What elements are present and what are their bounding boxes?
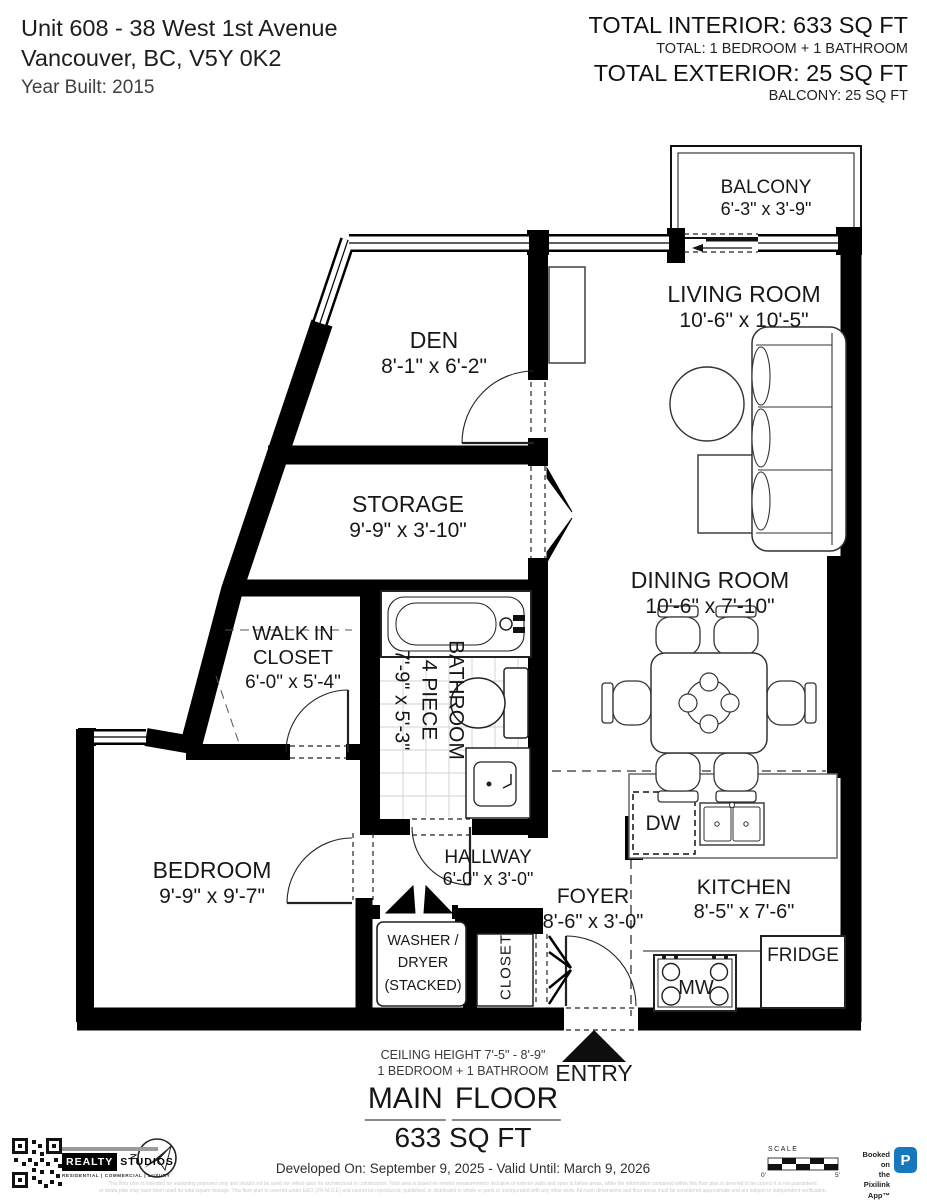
scale-end: 5' xyxy=(835,1172,840,1179)
floorplan-page: Unit 608 - 38 West 1st Avenue Vancouver,… xyxy=(0,0,927,1200)
pixilink-caption: Booked on the Pixilink App™ xyxy=(853,1150,890,1200)
label-kitchen: KITCHEN 8'-5" x 7'-6" xyxy=(694,874,795,925)
label-storage: STORAGE 9'-9" x 3'-10" xyxy=(349,490,466,544)
floor-area: 633 SQ FT xyxy=(395,1122,532,1154)
exterior-detail: BALCONY: 25 SQ FT xyxy=(589,88,909,104)
label-entry: ENTRY xyxy=(555,1060,633,1087)
scale-start: 0' xyxy=(761,1172,766,1179)
qr-code-icon xyxy=(12,1138,62,1188)
floor-title: MAINFLOOR xyxy=(362,1082,564,1121)
label-microwave: MW xyxy=(678,977,714,1000)
label-bathroom: BATHROOM 4 PIECE 7'-9" x 5'-3" xyxy=(389,640,470,760)
realty-studios-logo: REALTY STUDIOS RESIDENTIAL | COMMERCIAL … xyxy=(62,1147,172,1178)
label-fridge: FRIDGE xyxy=(767,945,839,967)
label-walk-in-closet: WALK IN CLOSET 6'-0" x 5'-4" xyxy=(245,622,341,694)
total-rooms: TOTAL: 1 BEDROOM + 1 BATHROOM xyxy=(589,41,909,57)
scale-bar xyxy=(768,1158,838,1170)
floor-word-floor: FLOOR xyxy=(452,1082,561,1121)
label-bedroom: BEDROOM 9'-9" x 9'-7" xyxy=(153,856,272,910)
property-header: Unit 608 - 38 West 1st Avenue Vancouver,… xyxy=(21,14,338,100)
scale-label: SCALE xyxy=(768,1146,798,1153)
label-dining-room: DINING ROOM 10'-6" x 7'-10" xyxy=(631,566,789,620)
logo-studios: STUDIOS xyxy=(117,1156,174,1168)
label-living-room: LIVING ROOM 10'-6" x 10'-5" xyxy=(667,280,820,334)
label-den: DEN 8'-1" x 6'-2" xyxy=(381,326,487,380)
disclaimer-line2: or strata plan may have been used for to… xyxy=(99,1188,827,1194)
area-summary-header: TOTAL INTERIOR: 633 SQ FT TOTAL: 1 BEDRO… xyxy=(589,14,909,109)
kitchen-sink-icon xyxy=(700,803,764,846)
pixilink-app-letter: P xyxy=(900,1152,910,1169)
total-interior: TOTAL INTERIOR: 633 SQ FT xyxy=(589,14,909,38)
label-hallway: HALLWAY 6'-0" x 3'-0" xyxy=(443,846,534,891)
label-balcony: BALCONY 6'-3" x 3'-9" xyxy=(721,176,812,221)
address-line1: Unit 608 - 38 West 1st Avenue xyxy=(21,14,338,44)
floor-word-main: MAIN xyxy=(365,1082,446,1121)
developed-valid-dates: Developed On: September 9, 2025 - Valid … xyxy=(276,1161,650,1176)
label-washer-dryer: WASHER / DRYER (STACKED) xyxy=(384,930,461,997)
bed-bath-count: 1 BEDROOM + 1 BATHROOM xyxy=(378,1064,549,1078)
disclaimer-line1: This floor plan is intended for marketin… xyxy=(108,1181,818,1187)
logo-bar xyxy=(62,1147,158,1151)
label-foyer-closet: CLOSET xyxy=(498,934,515,1000)
bathroom-sink-icon xyxy=(466,748,530,818)
pixilink-app-icon: P xyxy=(894,1147,917,1173)
address-line2: Vancouver, BC, V5Y 0K2 xyxy=(21,44,338,74)
logo-realty: REALTY xyxy=(62,1153,117,1171)
label-dishwasher: DW xyxy=(646,812,681,836)
label-foyer: FOYER 8'-6" x 3'-0" xyxy=(543,884,644,934)
ceiling-height: CEILING HEIGHT 7'-5" - 8'-9" xyxy=(381,1048,546,1062)
compass-north-label: N xyxy=(129,1154,138,1160)
entry-arrow-icon xyxy=(562,1030,626,1062)
total-exterior: TOTAL EXTERIOR: 25 SQ FT xyxy=(589,62,909,86)
year-built: Year Built: 2015 xyxy=(21,76,338,100)
logo-tagline: RESIDENTIAL | COMMERCIAL | LUXURY xyxy=(62,1173,172,1178)
